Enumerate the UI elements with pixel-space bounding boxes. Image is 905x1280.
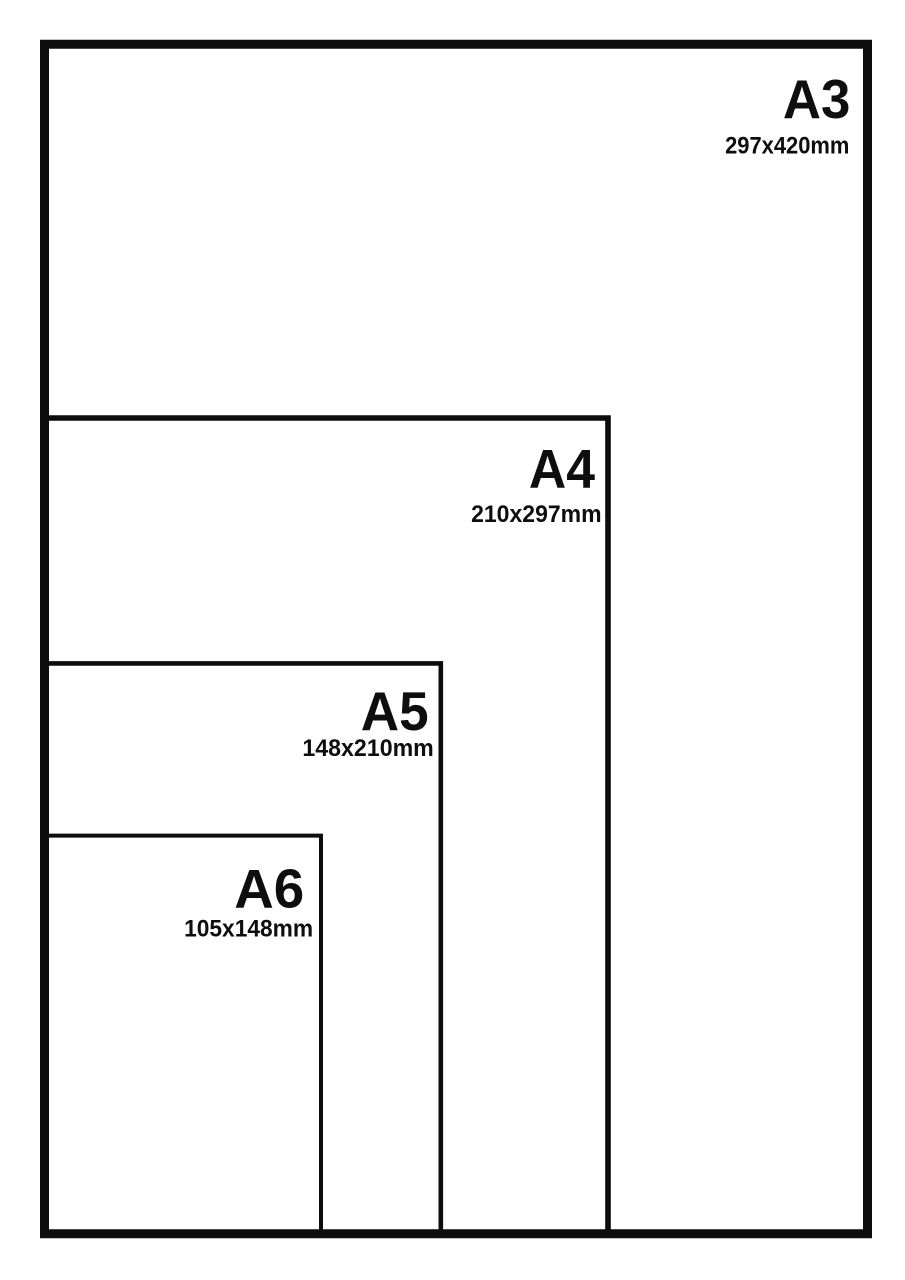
svg-text:A3: A3 [783,68,851,130]
svg-text:A4: A4 [529,438,595,500]
svg-text:A6: A6 [234,858,304,920]
svg-text:A5: A5 [361,680,429,742]
svg-text:105x148mm: 105x148mm [184,916,313,943]
svg-text:210x297mm: 210x297mm [471,501,602,528]
svg-text:148x210mm: 148x210mm [302,735,433,762]
svg-text:297x420mm: 297x420mm [725,132,849,159]
